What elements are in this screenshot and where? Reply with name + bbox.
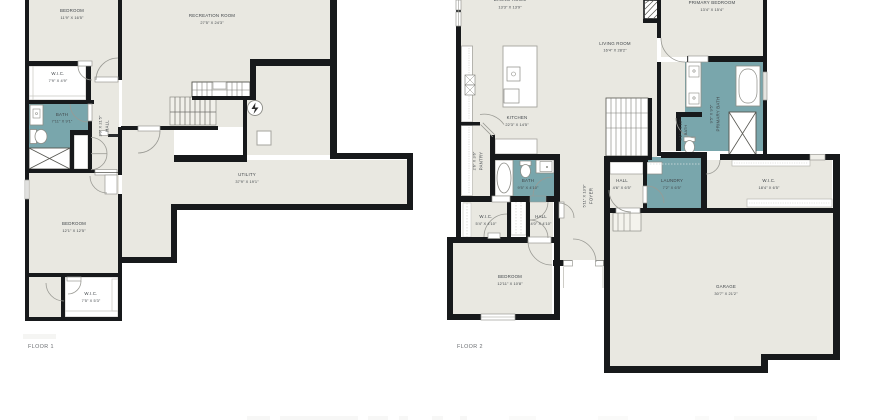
svg-text:RECREATION ROOM: RECREATION ROOM <box>189 13 235 18</box>
svg-text:4'6" X 6'5": 4'6" X 6'5" <box>613 185 632 190</box>
svg-text:BATH: BATH <box>683 125 688 136</box>
svg-text:KITCHEN: KITCHEN <box>507 115 528 120</box>
svg-text:7'9" X 4'9": 7'9" X 4'9" <box>49 78 68 83</box>
svg-text:37'9" X 19'1": 37'9" X 19'1" <box>235 179 259 184</box>
svg-text:W.I.C.: W.I.C. <box>51 71 64 76</box>
svg-text:BEDROOM: BEDROOM <box>498 274 522 279</box>
svg-text:18'4" X 6'5": 18'4" X 6'5" <box>758 185 780 190</box>
svg-text:W.I.C.: W.I.C. <box>762 178 775 183</box>
svg-text:PANTRY: PANTRY <box>479 152 484 171</box>
svg-text:9'5" X 4'10": 9'5" X 4'10" <box>517 185 539 190</box>
svg-text:UTILITY: UTILITY <box>238 172 256 177</box>
svg-text:5'11" X 13'9": 5'11" X 13'9" <box>582 184 587 208</box>
svg-text:HALL: HALL <box>616 178 628 183</box>
svg-text:27'5" X 24'3": 27'5" X 24'3" <box>200 20 224 25</box>
svg-text:5'4" X 4'10": 5'4" X 4'10" <box>475 221 497 226</box>
svg-text:BATH: BATH <box>56 112 68 117</box>
svg-text:7'5" X 5'3": 7'5" X 5'3" <box>82 298 101 303</box>
svg-text:4'0" X 4'10": 4'0" X 4'10" <box>530 221 552 226</box>
svg-text:2'6" X 3'6": 2'6" X 3'6" <box>472 151 477 170</box>
svg-text:7'11" X 9'1": 7'11" X 9'1" <box>52 119 73 124</box>
svg-text:LIVING ROOM: LIVING ROOM <box>599 41 631 46</box>
svg-text:BATH: BATH <box>522 178 534 183</box>
svg-text:9'5" X 9'5": 9'5" X 9'5" <box>709 104 714 123</box>
svg-text:BEDROOM: BEDROOM <box>62 221 86 226</box>
svg-text:PRIMARY BATH: PRIMARY BATH <box>716 97 721 132</box>
svg-text:22'3" X 14'5": 22'3" X 14'5" <box>505 122 529 127</box>
svg-text:30'7" X 21'2": 30'7" X 21'2" <box>714 291 738 296</box>
svg-text:FLOOR 1: FLOOR 1 <box>28 344 54 350</box>
svg-text:13'3" X 13'9": 13'3" X 13'9" <box>498 5 522 10</box>
svg-text:FLOOR 2: FLOOR 2 <box>457 344 483 350</box>
svg-text:W.I.C.: W.I.C. <box>84 291 97 296</box>
svg-text:HALL: HALL <box>105 120 110 132</box>
svg-text:11'9" X 16'5": 11'9" X 16'5" <box>61 15 85 20</box>
svg-text:13'4" X 15'4": 13'4" X 15'4" <box>700 7 724 12</box>
svg-text:LAUNDRY: LAUNDRY <box>661 178 683 183</box>
svg-text:DINING ROOM: DINING ROOM <box>494 0 527 2</box>
svg-text:BEDROOM: BEDROOM <box>60 8 84 13</box>
svg-text:12'1" X 12'5": 12'1" X 12'5" <box>62 228 86 233</box>
svg-text:HALL: HALL <box>535 214 547 219</box>
svg-text:PRIMARY BEDROOM: PRIMARY BEDROOM <box>689 0 736 5</box>
svg-text:7'2" X 6'5": 7'2" X 6'5" <box>663 185 682 190</box>
svg-text:12'11" X 10'8": 12'11" X 10'8" <box>497 281 523 286</box>
svg-text:3'0" X 21'5": 3'0" X 21'5" <box>98 115 103 137</box>
svg-text:16'4" X 28'2": 16'4" X 28'2" <box>603 48 627 53</box>
svg-text:FOYER: FOYER <box>589 188 594 204</box>
svg-text:GARAGE: GARAGE <box>716 284 736 289</box>
svg-text:W.I.C.: W.I.C. <box>479 214 492 219</box>
